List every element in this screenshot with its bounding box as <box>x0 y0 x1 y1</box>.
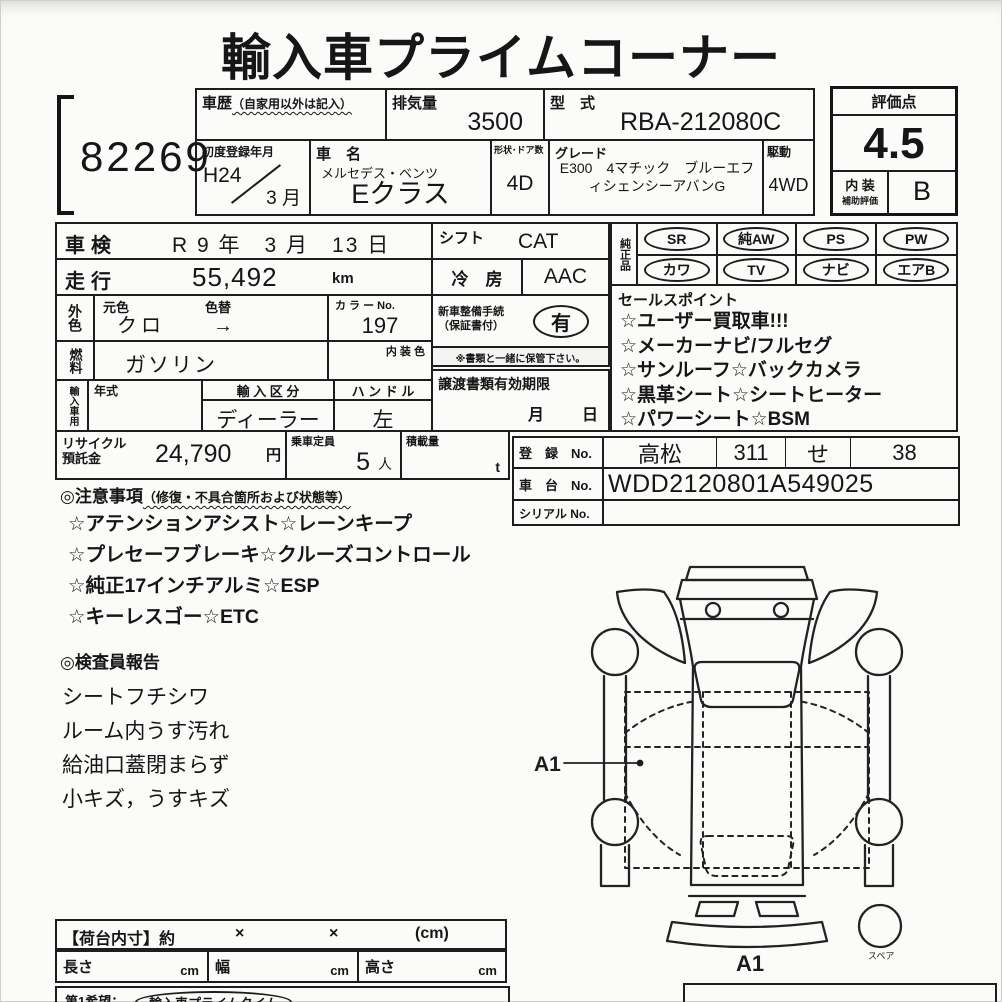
lot-number: 82269 <box>80 133 212 181</box>
import-class-label: 輸 入 区 分 <box>203 381 333 401</box>
recycle-row: リサイクル 預託金 24,790 円 乗車定員 5 人 積載量 t <box>55 430 510 480</box>
recycle-unit: 円 <box>266 444 281 465</box>
sales-point-item: ☆ユーザー買取車!!! <box>620 310 956 335</box>
orig-color-value: クロ <box>117 309 165 338</box>
badge-ps: PS <box>803 227 869 251</box>
wish-box: 第1希望： 輸入車プライムタイム <box>55 986 510 1002</box>
inspector-section: ◎検査員報告 シートフチシワ ルーム内うす汚れ 給油口蓋閉まらず 小キズ，うすキ… <box>60 648 480 817</box>
bed-label: 【荷台内寸】約 <box>63 925 175 949</box>
score-box: 評価点 4.5 内 装 補助評価 B <box>830 86 958 216</box>
bottom-mark-a1: A1 <box>736 951 764 976</box>
reg-area: 高松 <box>604 438 717 467</box>
shift-cell: シフト CAT <box>431 222 610 260</box>
load-label: 積載量 <box>406 433 439 449</box>
transfer-label: 譲渡書類有効期限 <box>438 374 550 394</box>
serial-label: シリアル No. <box>514 501 604 526</box>
interior-color-label: 内 装 色 <box>386 343 425 359</box>
model-code-value: RBA-212080C <box>620 108 781 137</box>
shape-label: 形状･ドア数 <box>494 143 544 156</box>
displacement-value: 3500 <box>467 108 523 137</box>
badge-airb: エアB <box>883 258 949 282</box>
sales-point-item: ☆メーカーナビ/フルセグ <box>620 335 956 360</box>
color-change-label: 色替 <box>205 297 231 316</box>
ac-label: 冷 房 <box>433 260 523 294</box>
model-code-label: 型 式 <box>550 92 595 113</box>
shape-cell: 形状･ドア数 4D <box>490 139 550 216</box>
capacity-value: 5 <box>356 448 370 477</box>
mileage-unit: km <box>332 270 354 287</box>
notes-header-note: （修復・不具合箇所および状態等） <box>143 490 351 505</box>
spare-tire-icon: スペア <box>859 905 901 961</box>
ac-value: AAC <box>523 260 608 294</box>
sales-points-box: セールスポイント ☆ユーザー買取車!!! ☆メーカーナビ/フルセグ ☆サンルーフ… <box>610 284 958 432</box>
bed-x2: × <box>329 925 338 943</box>
import-row: 輸入車用 年式 輸 入 区 分 ディーラー ハ ン ド ル 左 <box>55 379 433 432</box>
interior-grade: B <box>889 172 955 213</box>
car-doors <box>617 590 877 664</box>
note-item: ☆キーレスゴー☆ETC <box>68 602 520 633</box>
interior-label-1: 内 装 <box>833 175 887 194</box>
shape-value: 4D <box>492 172 548 196</box>
car-body-outline <box>667 567 827 947</box>
length-label: 長さ <box>63 956 93 977</box>
history-cell: 車歴（自家用以外は記入） <box>195 88 387 141</box>
bed-size-box: 【荷台内寸】約 × × (cm) <box>55 919 507 950</box>
width-label: 幅 <box>215 956 230 977</box>
notes-section: ◎注意事項（修復・不具合箇所および状態等） ☆アテンションアシスト☆レーンキープ… <box>60 482 520 633</box>
shaken-label: 車検 <box>65 229 117 258</box>
wish-value: 輸入車プライムタイム <box>135 991 292 1002</box>
bed-unit: (cm) <box>415 925 449 943</box>
inspector-header: ◎検査員報告 <box>60 648 480 673</box>
bed-x1: × <box>235 925 244 943</box>
fuel-row: 燃料 ガソリン 内 装 色 <box>55 340 433 381</box>
mileage-value: 55,492 <box>192 262 278 293</box>
recycle-value: 24,790 <box>155 440 231 469</box>
notes-header: ◎注意事項 <box>60 487 143 506</box>
chassis-label: 車 台 No. <box>514 469 604 499</box>
transfer-cell: 譲渡書類有効期限 月 日 <box>431 369 610 432</box>
spare-label: スペア <box>868 951 894 961</box>
history-label: 車歴 <box>202 95 232 112</box>
reg-number: 38 <box>851 438 958 467</box>
score-value: 4.5 <box>833 114 955 172</box>
shaken-value: R 9 年 3 月 13 日 <box>172 229 390 259</box>
capacity-label: 乗車定員 <box>291 433 335 449</box>
note-item: ☆アテンションアシスト☆レーンキープ <box>68 509 520 540</box>
keep-note-cell: ※書類と一緒に保管下さい。 <box>431 346 610 367</box>
note-item: ☆純正17インチアルミ☆ESP <box>68 571 520 602</box>
first-reg-label: 初度登録年月 <box>202 143 274 160</box>
height-label: 高さ <box>365 956 395 977</box>
ac-cell: 冷 房 AAC <box>431 258 610 296</box>
car-damage-diagram: A1 A1 スペア <box>500 555 1002 1002</box>
sales-point-item: ☆サンルーフ☆バックカメラ <box>620 359 956 384</box>
lot-bracket <box>57 95 74 215</box>
car-model: Eクラス <box>311 172 490 211</box>
mileage-row: 走行 55,492 km <box>55 258 433 296</box>
sales-point-item: ☆黒革シート☆シートヒーター <box>620 384 956 409</box>
year-label: 年式 <box>94 382 118 399</box>
drive-value: 4WD <box>764 175 813 196</box>
new-car-cell: 新車整備手続 （保証書付） 有 <box>431 294 610 348</box>
ext-color-label: 外色 <box>57 296 95 340</box>
serial-value <box>604 501 958 526</box>
wish-label: 第1希望： <box>65 991 124 1002</box>
auction-sheet: 輸入車プライムコーナー 82269 車歴（自家用以外は記入） 排気量 3500 … <box>0 0 1002 1002</box>
reg-no-label: 登 録 No. <box>514 438 604 467</box>
drive-label: 駆動 <box>767 143 791 160</box>
page-title: 輸入車プライムコーナー <box>0 18 1002 90</box>
recycle-label-2: 預託金 <box>62 451 126 466</box>
registration-box: 登 録 No. 高松 311 せ 38 車 台 No. WDD2120801A5… <box>512 436 960 526</box>
color-no-value: 197 <box>329 313 431 339</box>
score-label: 評価点 <box>833 89 955 114</box>
first-reg-year: H24 <box>203 164 242 188</box>
equipment-box: 純正品 SR 純AW PS PW カワ TV ナビ エアB <box>610 222 958 286</box>
transfer-day: 日 <box>582 401 598 425</box>
equipment-label: 純正品 <box>612 224 638 284</box>
car-floor-dashed <box>625 692 869 876</box>
color-arrow: → <box>213 315 233 338</box>
height-unit: cm <box>478 963 497 978</box>
badge-tv: TV <box>723 258 789 282</box>
width-unit: cm <box>330 963 349 978</box>
import-label: 輸入車用 <box>57 381 89 430</box>
mileage-label: 走行 <box>65 265 117 294</box>
fuel-label: 燃料 <box>57 342 95 379</box>
new-car-label-2: （保証書付） <box>438 319 504 333</box>
badge-kawa: カワ <box>644 258 710 282</box>
car-name-label: 車 名 <box>316 143 361 164</box>
inspector-item: ルーム内うす汚れ <box>62 715 480 749</box>
handle-label: ハ ン ド ル <box>335 381 431 401</box>
displacement-label: 排気量 <box>392 92 437 113</box>
model-code-cell: 型 式 RBA-212080C <box>543 88 815 141</box>
new-car-value: 有 <box>533 305 589 338</box>
reg-class: 311 <box>717 438 786 467</box>
load-unit: t <box>495 459 500 475</box>
badge-sr: SR <box>644 227 710 251</box>
inspector-item: 小キズ，うすキズ <box>62 783 480 817</box>
first-reg-cell: 初度登録年月 H24 3 月 <box>195 139 311 216</box>
recycle-label-1: リサイクル <box>62 436 126 451</box>
chassis-value: WDD2120801A549025 <box>604 469 958 499</box>
keep-note: ※書類と一緒に保管下さい。 <box>433 350 608 365</box>
inspector-item: 給油口蓋閉まらず <box>62 749 480 783</box>
grade-cell: グレード E300 4マチック ブルーエフィシェンシーアバンG <box>548 139 764 216</box>
new-car-label-1: 新車整備手続 <box>438 305 504 319</box>
interior-label-2: 補助評価 <box>833 194 887 207</box>
history-note: （自家用以外は記入） <box>232 97 352 111</box>
badge-navi: ナビ <box>803 258 869 282</box>
reg-kana: せ <box>786 438 851 467</box>
shift-label: シフト <box>439 227 484 248</box>
grade-value: E300 4マチック ブルーエフィシェンシーアバンG <box>558 159 756 195</box>
first-reg-month: 3 月 <box>266 183 301 210</box>
length-unit: cm <box>180 963 199 978</box>
badge-aw: 純AW <box>723 227 789 251</box>
sales-point-item: ☆パワーシート☆BSM <box>620 408 956 433</box>
ext-color-row: 外色 元色 色替 クロ → カ ラ ー No. 197 <box>55 294 433 342</box>
capacity-unit: 人 <box>378 454 392 474</box>
svg-text:A1: A1 <box>534 753 561 776</box>
transfer-month: 月 <box>528 401 544 425</box>
badge-pw: PW <box>883 227 949 251</box>
color-no-label: カ ラ ー No. <box>335 297 395 313</box>
displacement-cell: 排気量 3500 <box>385 88 545 141</box>
note-item: ☆プレセーフブレーキ☆クルーズコントロール <box>68 540 520 571</box>
car-name-cell: 車 名 メルセデス・ベンツ Eクラス <box>309 139 492 216</box>
inspector-item: シートフチシワ <box>62 681 480 715</box>
drive-cell: 駆動 4WD <box>762 139 815 216</box>
bottom-right-box <box>683 983 997 1002</box>
shift-value: CAT <box>518 230 558 254</box>
dimensions-row: 長さ cm 幅 cm 高さ cm <box>55 950 507 983</box>
fuel-value: ガソリン <box>125 349 217 379</box>
shaken-row: 車検 R 9 年 3 月 13 日 <box>55 222 433 260</box>
sales-points-label: セールスポイント <box>612 286 956 310</box>
